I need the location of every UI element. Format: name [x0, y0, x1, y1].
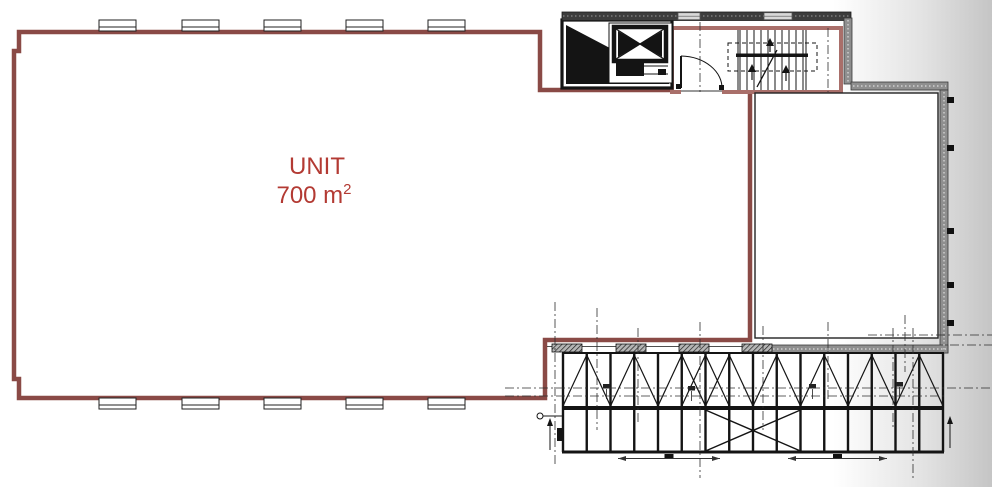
window [428, 20, 465, 31]
window [99, 398, 136, 409]
truss-diagonal [587, 355, 611, 406]
dimension-arrow [788, 456, 796, 461]
node-mark [896, 382, 903, 387]
window [346, 398, 383, 409]
dimension-text-mark [833, 454, 842, 458]
truss-diagonal [848, 355, 872, 406]
right-arrow-head [947, 416, 953, 424]
truss-diagonal [611, 355, 635, 406]
dimension-arrow [879, 456, 887, 461]
window [264, 20, 301, 31]
truss-diagonal [919, 355, 943, 406]
stairwell-room [672, 28, 841, 92]
window [264, 398, 301, 409]
floor-plan-drawing: UNIT 700 m2 [0, 0, 992, 487]
window [99, 20, 136, 31]
column-pads [552, 344, 772, 352]
truss-diagonal [563, 355, 587, 406]
window [428, 398, 465, 409]
dimension-arrow [712, 456, 720, 461]
unit-label: UNIT [289, 153, 345, 180]
truss-diagonal [658, 355, 682, 406]
truss-diagonal [872, 355, 896, 406]
gray-wall-vertical-left [844, 18, 852, 84]
gray-wall-horizontal-bottom [755, 345, 948, 353]
door-hinge-block [676, 84, 681, 89]
window [182, 398, 219, 409]
lift-detail-block [658, 69, 666, 75]
truss-diagonal [753, 355, 777, 406]
stair-landing-rail [736, 54, 808, 58]
door-opening [681, 86, 722, 96]
door-stop-block [719, 85, 724, 90]
truss-diagonal [777, 355, 801, 406]
column-pad [742, 344, 772, 352]
wall-tick [947, 320, 954, 326]
truss-diagonal [896, 355, 920, 406]
truss-left-block [557, 428, 564, 441]
truss-posts [563, 353, 943, 452]
window [346, 20, 383, 31]
wall-tick [947, 282, 954, 288]
unit-area-label: 700 m2 [276, 181, 351, 209]
dimension-lines [618, 454, 887, 461]
wall-tick [947, 97, 954, 103]
column-pad [679, 344, 709, 352]
right-room [755, 93, 938, 338]
window [182, 20, 219, 31]
wall-tick [947, 145, 954, 151]
column-pad [616, 344, 646, 352]
dimension-text-mark [665, 454, 674, 458]
wall-tick [947, 228, 954, 234]
truss-diagonal [729, 355, 753, 406]
survey-point-circle [537, 413, 543, 419]
dimension-arrow [618, 456, 626, 461]
column-pad [552, 344, 582, 352]
lift-machine-detail [616, 62, 644, 76]
left-arrow-head [547, 418, 553, 426]
